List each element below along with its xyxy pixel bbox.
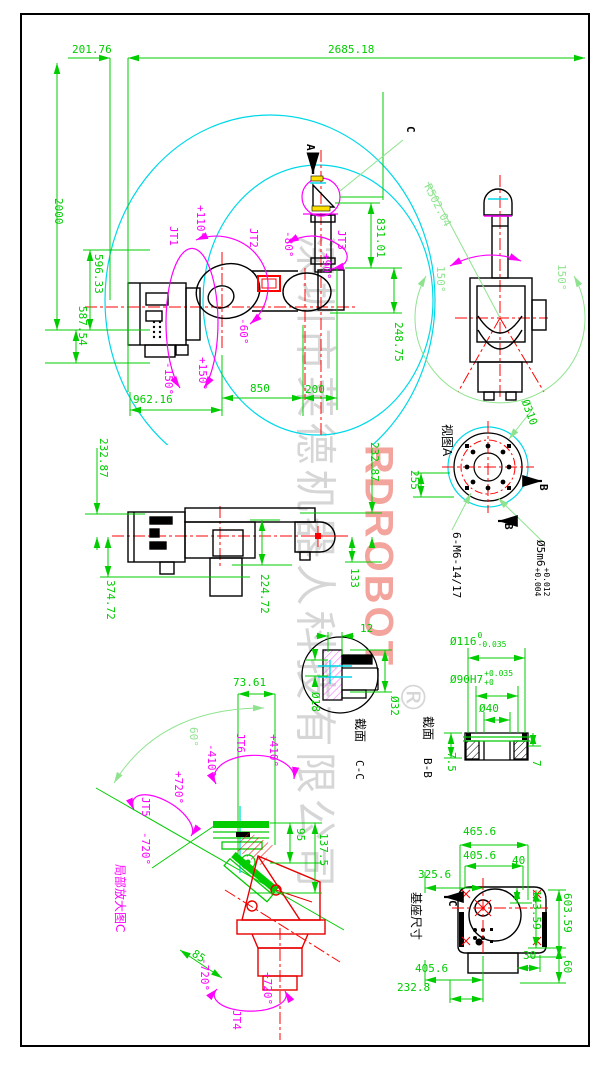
jt5-min-angle: -720° bbox=[140, 832, 151, 865]
section-bb-name: B-B bbox=[422, 758, 433, 778]
dim-962-16: 962.16 bbox=[133, 394, 173, 405]
joint-label-jt1: JT1 bbox=[168, 226, 179, 246]
angle-150-right: 150° bbox=[556, 264, 567, 291]
dim-596-33: 596.33 bbox=[93, 254, 104, 294]
detail-c-mark: C bbox=[405, 126, 416, 133]
dim-40: 40 bbox=[512, 855, 525, 866]
section-cc-title: 截面 bbox=[354, 718, 366, 742]
dim-200: 200 bbox=[305, 384, 325, 395]
view-a-title: 视图A bbox=[441, 424, 453, 456]
detail-view-flange bbox=[213, 821, 279, 902]
section-b-mark-2: B bbox=[503, 523, 514, 530]
joint-label-jt2: JT2 bbox=[248, 228, 259, 248]
note-bolt-pattern: 6-M6-14/17 bbox=[451, 532, 462, 598]
dim-2685-18: 2685.18 bbox=[328, 44, 374, 55]
dim-325-6: 325.6 bbox=[418, 869, 451, 880]
angle-60: 60° bbox=[188, 727, 199, 747]
jt6-max-angle: +410° bbox=[268, 734, 279, 767]
dim-587-54: 587.54 bbox=[77, 306, 88, 346]
jt2-max-angle: +110° bbox=[195, 205, 206, 238]
jt4-max-angle: +720° bbox=[262, 972, 273, 1005]
angle-150-left: 150° bbox=[435, 266, 446, 293]
arm-red-block bbox=[258, 276, 280, 291]
detail-view-axes bbox=[96, 694, 344, 930]
jt3-max-angle: +90° bbox=[321, 253, 332, 280]
dim-405-6-top: 405.6 bbox=[463, 850, 496, 861]
dim-dia-18: Ø18 bbox=[310, 692, 321, 712]
dim-133: 133 bbox=[349, 568, 360, 588]
drawing-linework bbox=[0, 0, 607, 1071]
dim-dia-32: Ø32 bbox=[389, 696, 400, 716]
dim-60: 60 bbox=[562, 960, 573, 973]
dim-30: 30 bbox=[523, 950, 536, 961]
dim-850: 850 bbox=[250, 383, 270, 394]
jt6-min-angle: -410° bbox=[206, 744, 217, 777]
top-view-marks bbox=[450, 199, 521, 266]
dim-7-5: 7.5 bbox=[446, 752, 457, 772]
dim-224-72: 224.72 bbox=[259, 574, 270, 614]
main-view-robot bbox=[128, 185, 344, 357]
section-bb-title: 截面 bbox=[422, 716, 434, 740]
dim-dia-116: Ø1160-0.035 bbox=[450, 632, 506, 650]
joint-label-jt4: JT4 bbox=[231, 1010, 242, 1030]
jt5-max-angle: +720° bbox=[173, 771, 184, 804]
section-b-mark-1: B bbox=[538, 484, 549, 491]
jt2-min-angle: -60° bbox=[238, 318, 249, 345]
section-cc-name: C-C bbox=[354, 760, 365, 780]
work-envelope bbox=[105, 115, 435, 485]
dim-831-01: 831.01 bbox=[375, 218, 386, 258]
detail-view-label: 局部放大图C bbox=[114, 864, 126, 932]
dim-143-59: 143.59 bbox=[531, 890, 542, 930]
dim-2000: 2000 bbox=[53, 198, 64, 225]
section-b-arrows bbox=[498, 481, 542, 521]
dim-dia-40: Ø40 bbox=[479, 703, 499, 714]
dim-137-5: 137.5 bbox=[318, 833, 329, 866]
jt1-min-angle: -150° bbox=[163, 362, 174, 395]
base-view-title: 基座尺寸 bbox=[410, 892, 422, 940]
folded-view-wrist-mark bbox=[306, 526, 344, 547]
dim-232-87-right: 232.87 bbox=[369, 442, 380, 482]
dim-374-72: 374.72 bbox=[105, 580, 116, 620]
dim-248-75: 248.75 bbox=[393, 322, 404, 362]
folded-view-centerlines bbox=[112, 506, 348, 568]
dim-dia-90h7: Ø90H7+0.035+0 bbox=[450, 670, 513, 688]
dim-465-6: 465.6 bbox=[463, 826, 496, 837]
folded-view-robot bbox=[128, 508, 335, 596]
joint-label-jt3: JT3 bbox=[336, 230, 347, 250]
dim-7: 7 bbox=[531, 760, 542, 767]
section-c-mark: C bbox=[447, 900, 458, 907]
top-view-robot bbox=[470, 189, 546, 400]
jt1-max-angle: +150° bbox=[197, 357, 208, 390]
cad-drawing-sheet: 深圳市莱德机器人科技有限公司 RDROBOT ® bbox=[0, 0, 607, 1071]
dim-405-6-bottom: 405.6 bbox=[415, 963, 448, 974]
joint-label-jt6: JT6 bbox=[235, 733, 246, 753]
detail-c-leader bbox=[340, 140, 403, 191]
section-bb-part bbox=[463, 733, 530, 760]
dim-603-59: 603.59 bbox=[562, 893, 573, 933]
jt3-min-angle: -80° bbox=[283, 231, 294, 258]
joint-label-jt5: JT5 bbox=[140, 797, 151, 817]
note-dowel-pin: Ø5m6+0.012+0.004 bbox=[532, 540, 550, 596]
dim-201-76: 201.76 bbox=[72, 44, 112, 55]
dim-232-8: 232.8 bbox=[397, 982, 430, 993]
view-a-mark: A bbox=[305, 144, 316, 151]
view-a-flange bbox=[442, 421, 534, 513]
dim-255: 255 bbox=[409, 470, 420, 490]
dim-232-87-left: 232.87 bbox=[98, 438, 109, 478]
dim-95: 95 bbox=[295, 828, 306, 841]
jt4-min-angle: -720° bbox=[199, 958, 210, 991]
dim-12: 12 bbox=[360, 623, 373, 634]
dim-73-61: 73.61 bbox=[233, 677, 266, 688]
